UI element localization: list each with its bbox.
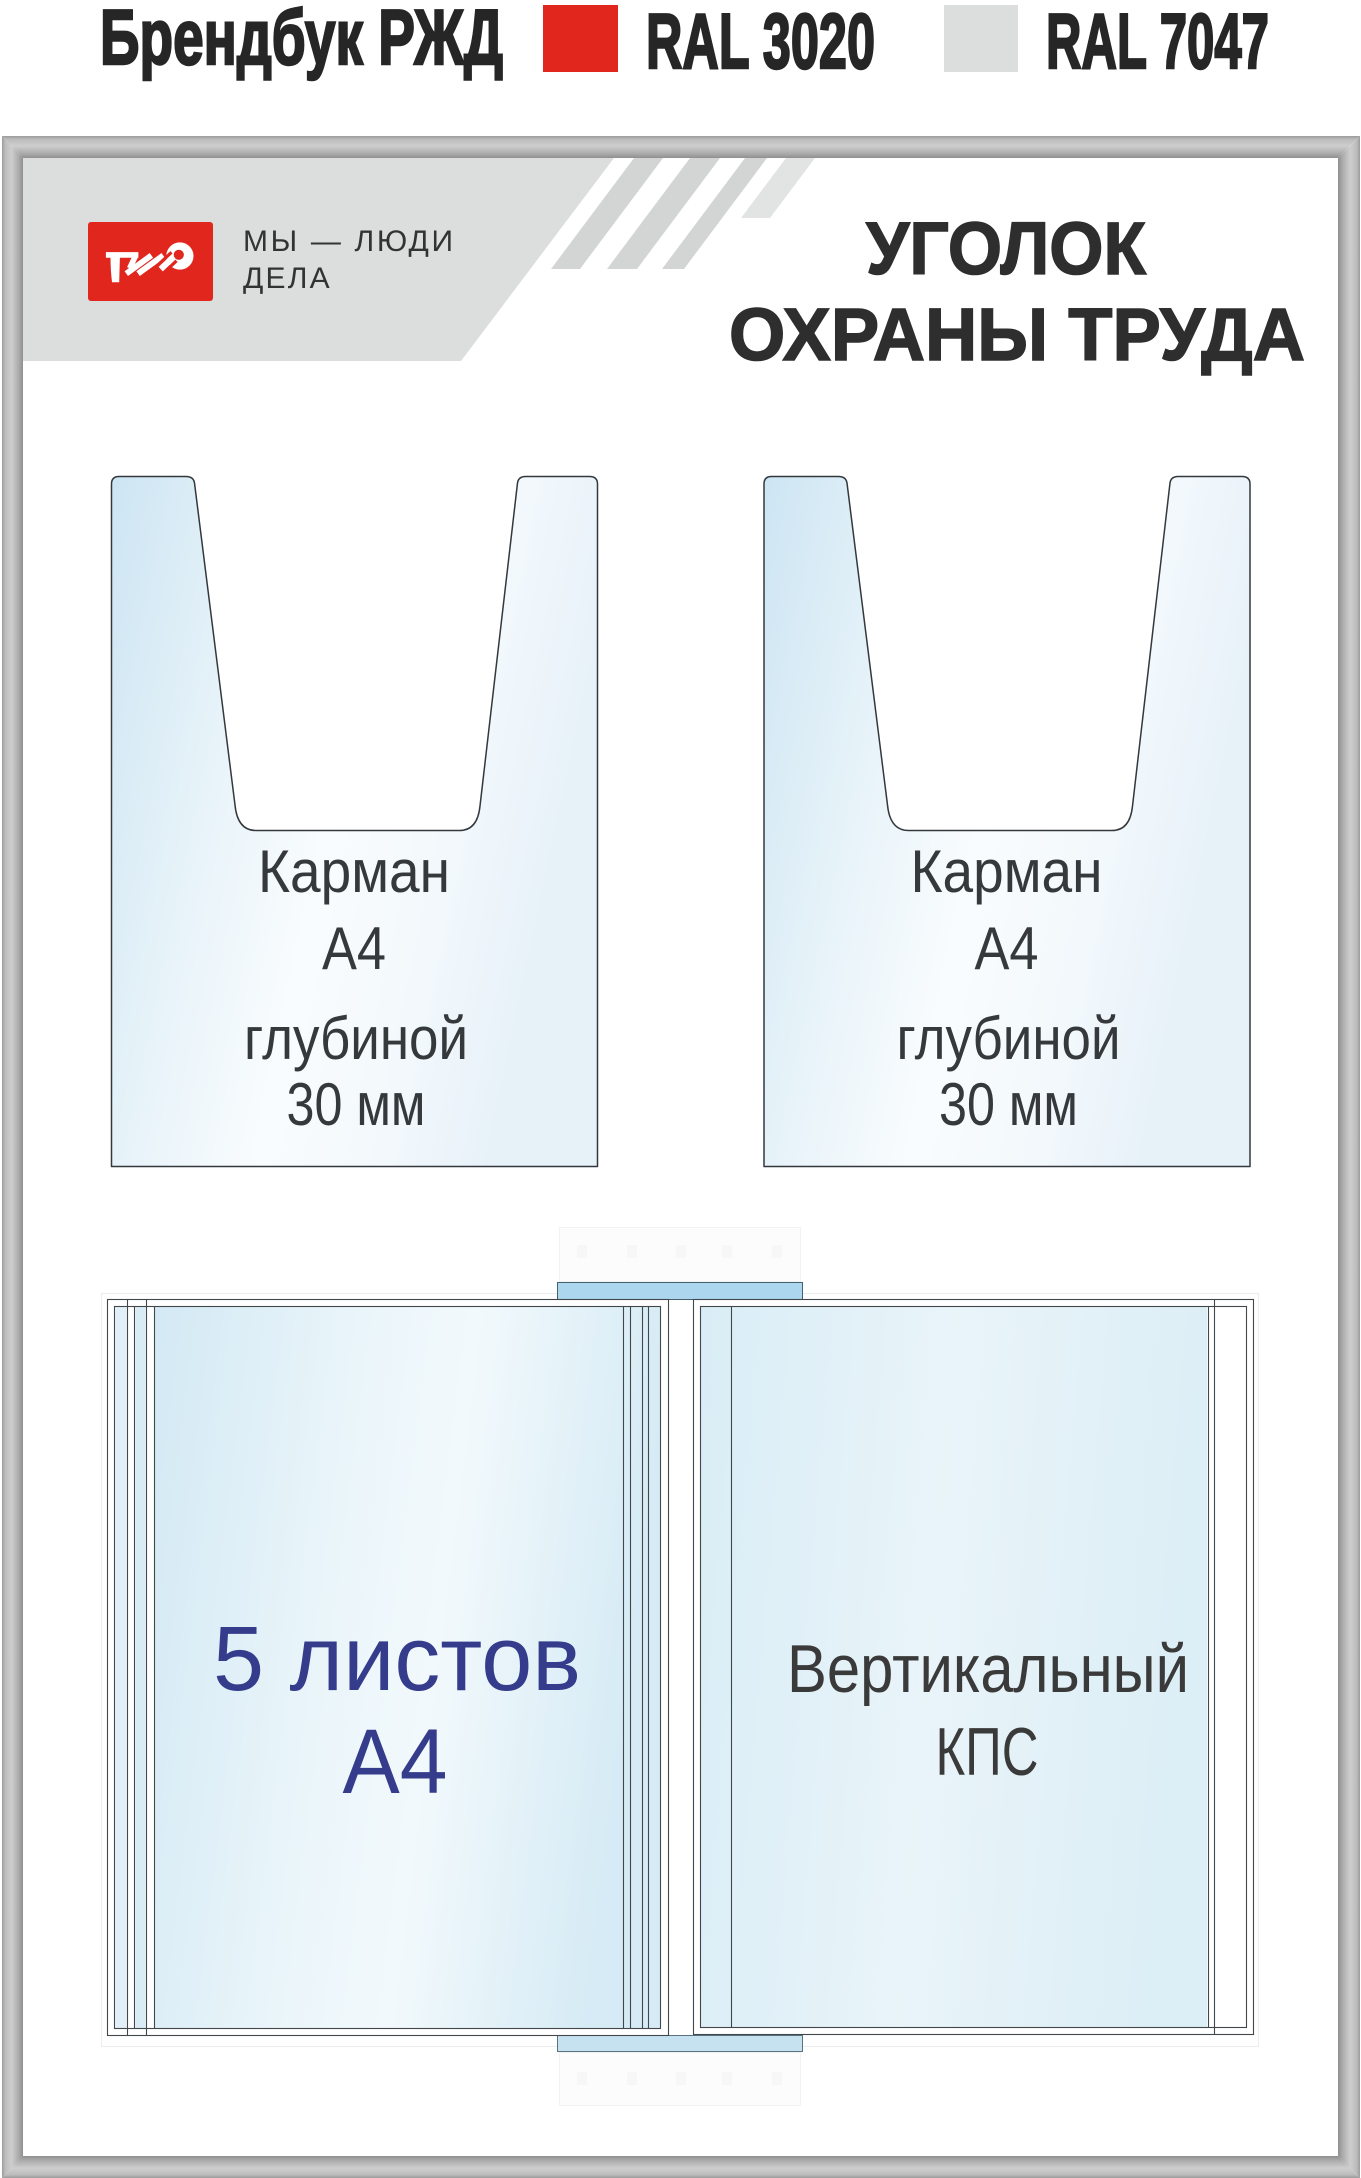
svg-text:RAL 7047: RAL 7047 [1046, 0, 1269, 85]
svg-text:А4: А4 [322, 915, 386, 982]
svg-text:глубиной: глубиной [244, 1005, 468, 1072]
svg-text:КПС: КПС [936, 1714, 1039, 1790]
svg-text:30 мм: 30 мм [287, 1071, 426, 1138]
svg-text:МЫ — ЛЮДИ: МЫ — ЛЮДИ [243, 225, 453, 258]
svg-text:УГОЛОК: УГОЛОК [866, 207, 1147, 290]
svg-text:ДЕЛА: ДЕЛА [243, 262, 332, 295]
svg-text:Вертикальный: Вертикальный [787, 1631, 1189, 1707]
svg-text:глубиной: глубиной [897, 1005, 1121, 1072]
svg-text:Брендбук РЖД: Брендбук РЖД [100, 0, 503, 81]
svg-text:30 мм: 30 мм [939, 1071, 1078, 1138]
svg-text:ОХРАНЫ ТРУДА: ОХРАНЫ ТРУДА [729, 293, 1305, 376]
svg-text:Карман: Карман [258, 838, 450, 905]
svg-text:Карман: Карман [911, 838, 1103, 905]
svg-text:RAL 3020: RAL 3020 [646, 0, 875, 85]
svg-text:А4: А4 [975, 915, 1039, 982]
svg-text:А4: А4 [343, 1711, 448, 1813]
svg-text:5 листов: 5 листов [213, 1608, 581, 1710]
